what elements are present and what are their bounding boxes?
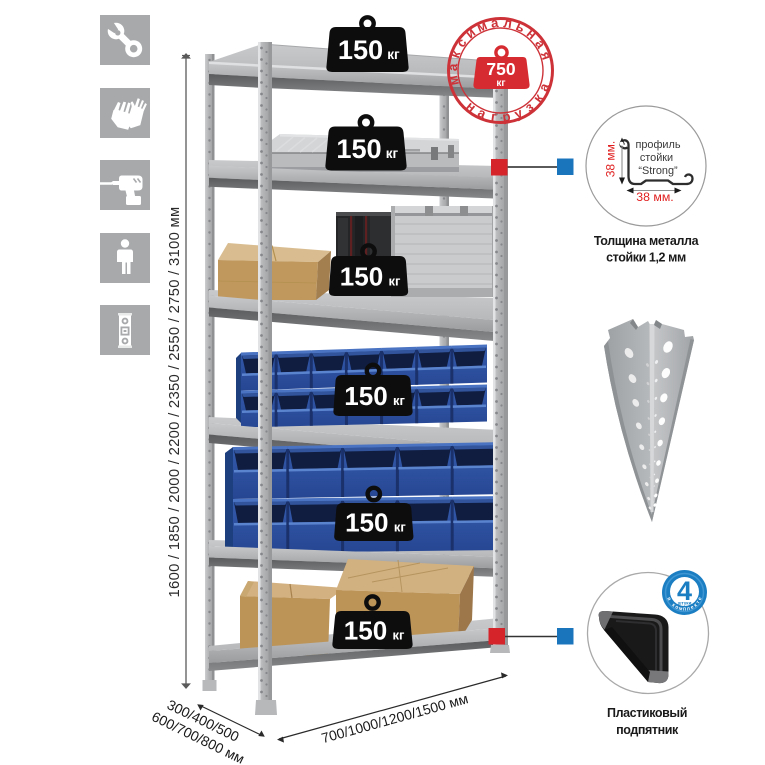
- svg-text:кг: кг: [393, 627, 406, 642]
- svg-text:л: л: [502, 15, 513, 31]
- svg-text:“Strong”: “Strong”: [638, 165, 678, 177]
- svg-text:кг: кг: [387, 47, 400, 62]
- svg-text:стойки 1,2 мм: стойки 1,2 мм: [606, 251, 686, 265]
- svg-text:кг: кг: [393, 393, 406, 408]
- svg-text:700/1000/1200/1500 мм: 700/1000/1200/1500 мм: [319, 690, 469, 746]
- svg-text:стойки: стойки: [640, 152, 673, 164]
- svg-text:кг: кг: [389, 273, 402, 288]
- svg-text:750: 750: [486, 59, 515, 79]
- svg-text:профиль: профиль: [635, 139, 680, 151]
- svg-text:150: 150: [338, 34, 383, 65]
- svg-text:150: 150: [336, 133, 381, 164]
- svg-text:150: 150: [344, 615, 387, 645]
- svg-text:150: 150: [345, 507, 388, 537]
- svg-text:150: 150: [340, 261, 383, 291]
- svg-text:150: 150: [344, 381, 387, 411]
- svg-text:подпятник: подпятник: [616, 723, 679, 737]
- svg-text:р: р: [501, 109, 511, 125]
- svg-text:1600 / 1850 / 2000 / 2200 / 23: 1600 / 1850 / 2000 / 2200 / 2350 / 2550 …: [167, 207, 183, 598]
- svg-text:38 мм.: 38 мм.: [636, 190, 673, 204]
- svg-text:кг: кг: [496, 78, 505, 89]
- svg-text:Толщина металла: Толщина металла: [594, 234, 700, 248]
- svg-text:кг: кг: [386, 146, 399, 161]
- svg-text:38 мм.: 38 мм.: [604, 141, 618, 178]
- svg-text:н: н: [463, 98, 479, 115]
- svg-text:Пластиковый: Пластиковый: [607, 706, 687, 720]
- svg-text:кг: кг: [394, 519, 407, 534]
